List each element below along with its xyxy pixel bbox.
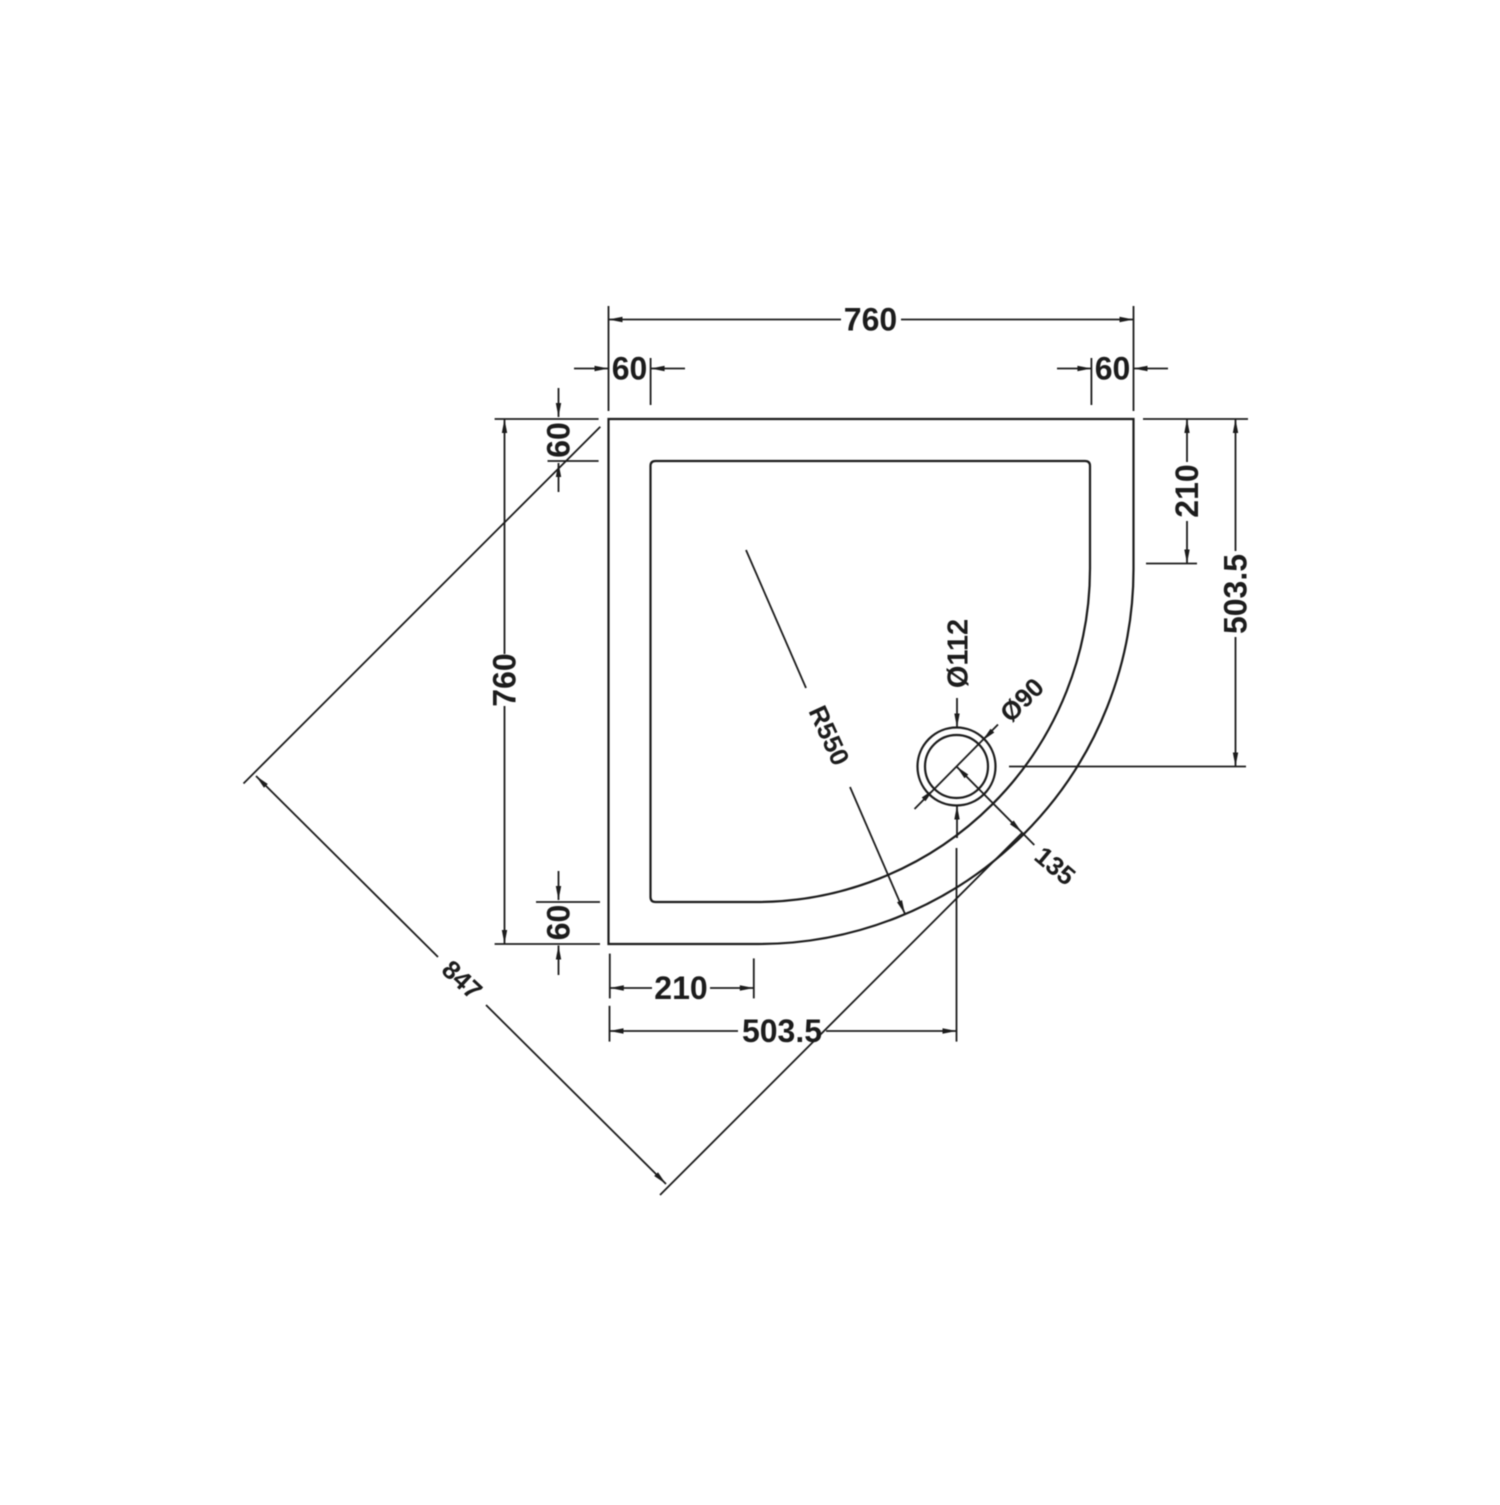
svg-text:60: 60 xyxy=(540,905,576,941)
svg-text:760: 760 xyxy=(844,301,897,337)
svg-text:760: 760 xyxy=(486,653,522,706)
svg-text:210: 210 xyxy=(1169,464,1205,517)
svg-text:210: 210 xyxy=(654,970,707,1006)
svg-text:503.5: 503.5 xyxy=(742,1013,822,1049)
svg-text:60: 60 xyxy=(540,422,576,458)
svg-text:60: 60 xyxy=(1095,350,1131,386)
svg-text:Ø112: Ø112 xyxy=(942,619,974,688)
svg-text:60: 60 xyxy=(612,350,648,386)
svg-text:503.5: 503.5 xyxy=(1217,554,1253,634)
